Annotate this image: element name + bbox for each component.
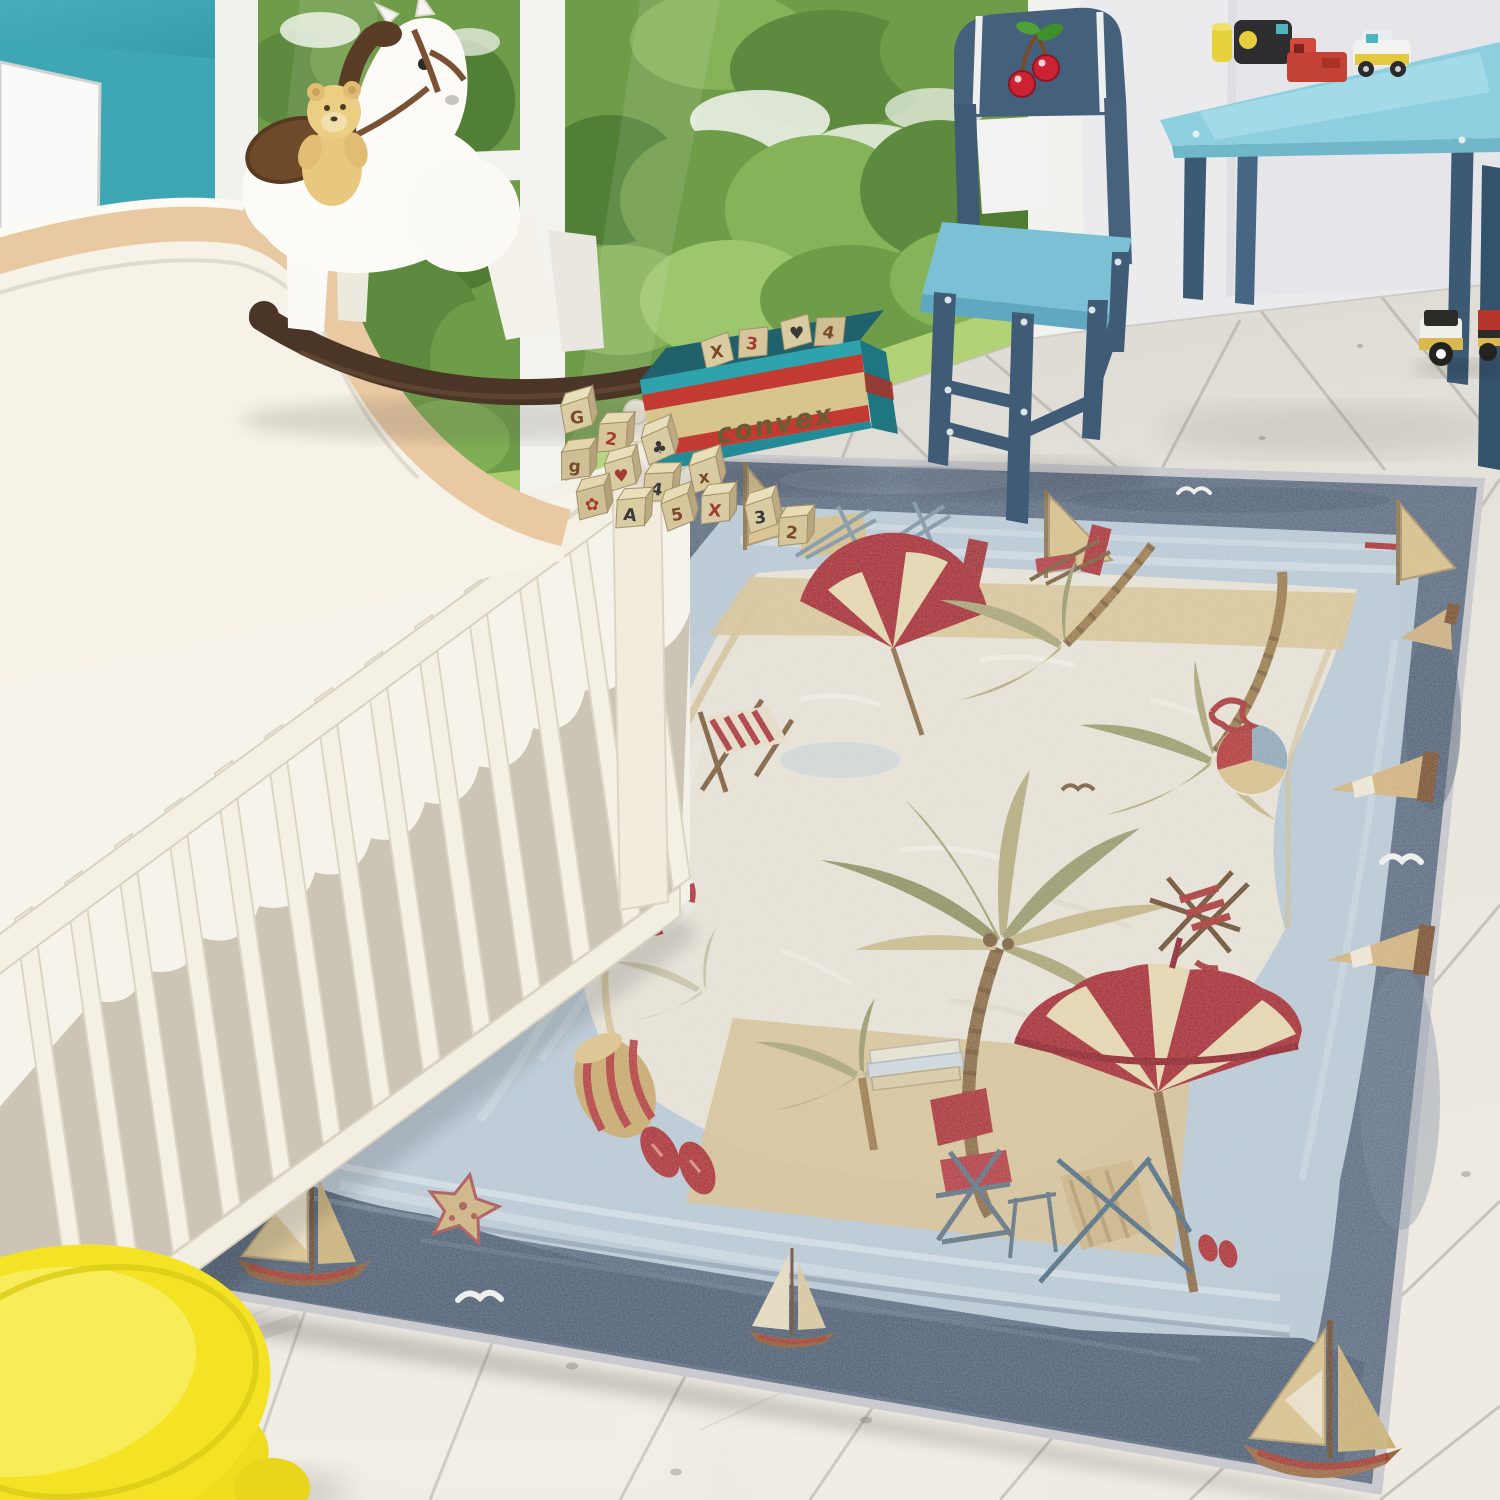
horse-nostril xyxy=(445,95,459,105)
horse-haunch xyxy=(404,156,520,272)
block-symbol: ♥ xyxy=(613,466,630,487)
toy-yellow-cylinder xyxy=(1212,26,1232,62)
block-symbol: 3 xyxy=(745,334,759,355)
block-symbol: 3 xyxy=(753,508,767,529)
cherry-fruit xyxy=(1009,71,1035,97)
horse-forelock xyxy=(366,21,402,47)
truck-shadow xyxy=(1414,359,1500,377)
table-shadow xyxy=(1160,404,1500,456)
block-symbol: ♥ xyxy=(789,323,806,344)
backrest-white-panel xyxy=(976,116,1052,214)
block-symbol: X xyxy=(707,501,722,522)
nursery-room-photo: X 3 ♥ 4 convex G 2 ♣ g ♥ 4 x ✿ A 5 X 3 2 xyxy=(0,0,1500,1500)
cherry-fruit xyxy=(1033,55,1059,81)
toy-black-camera xyxy=(1234,20,1292,64)
block-symbol: X xyxy=(709,342,725,364)
wooden-toy-truck xyxy=(1414,310,1500,377)
table-screw xyxy=(1459,137,1466,144)
truck-cab-top xyxy=(1424,310,1458,326)
block-symbol: G xyxy=(569,408,585,429)
block-symbol: 2 xyxy=(785,523,799,544)
toy-red-trailer xyxy=(1478,310,1500,361)
block-symbol: g xyxy=(568,457,582,478)
table-screw xyxy=(1193,131,1200,138)
nursery-scene: X 3 ♥ 4 convex G 2 ♣ g ♥ 4 x ✿ A 5 X 3 2 xyxy=(0,0,1500,1500)
block-symbol: ✿ xyxy=(585,495,600,516)
truck-hub xyxy=(1436,349,1446,359)
rocker-curl xyxy=(249,301,279,331)
